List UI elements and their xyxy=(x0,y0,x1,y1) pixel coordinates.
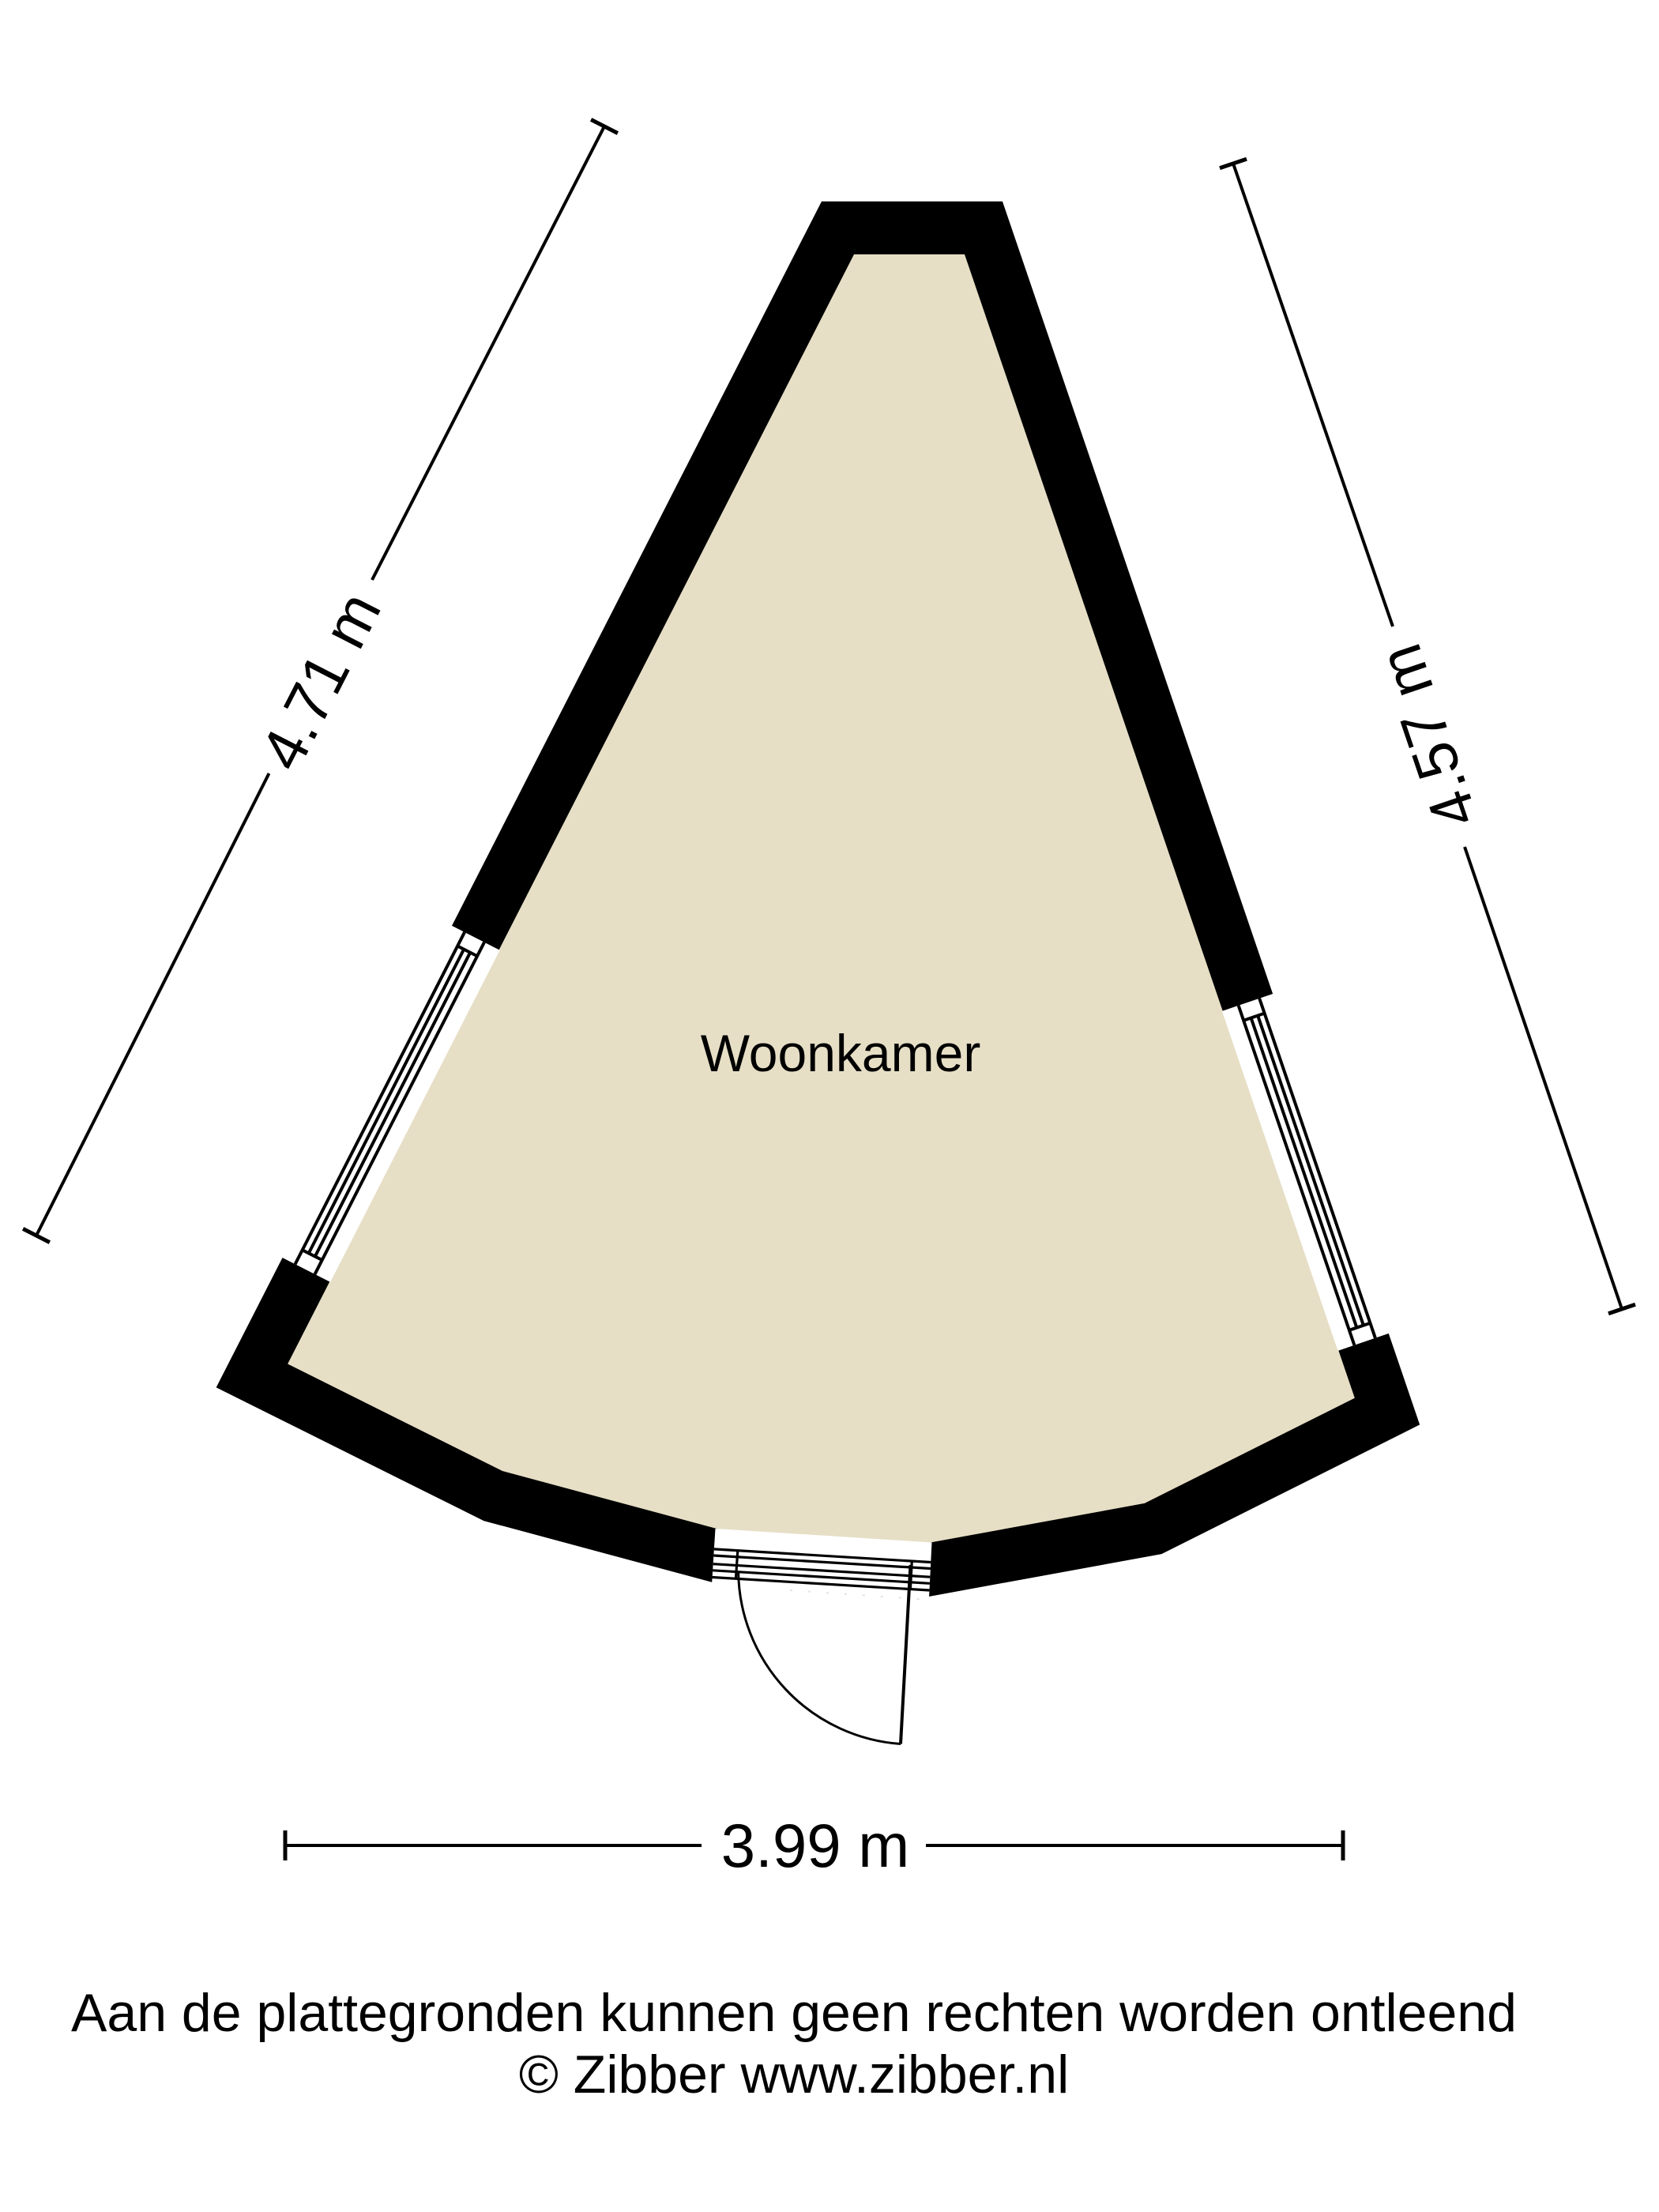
svg-text:Woonkamer: Woonkamer xyxy=(701,1024,981,1082)
svg-text:4.57 m: 4.57 m xyxy=(1364,636,1491,837)
svg-text:Aan de plattegronden kunnen ge: Aan de plattegronden kunnen geen rechten… xyxy=(71,1983,1517,2043)
svg-text:3.99 m: 3.99 m xyxy=(721,1811,909,1880)
svg-text:4.71 m: 4.71 m xyxy=(246,581,394,781)
svg-text:© Zibber www.zibber.nl: © Zibber www.zibber.nl xyxy=(519,2045,1069,2105)
